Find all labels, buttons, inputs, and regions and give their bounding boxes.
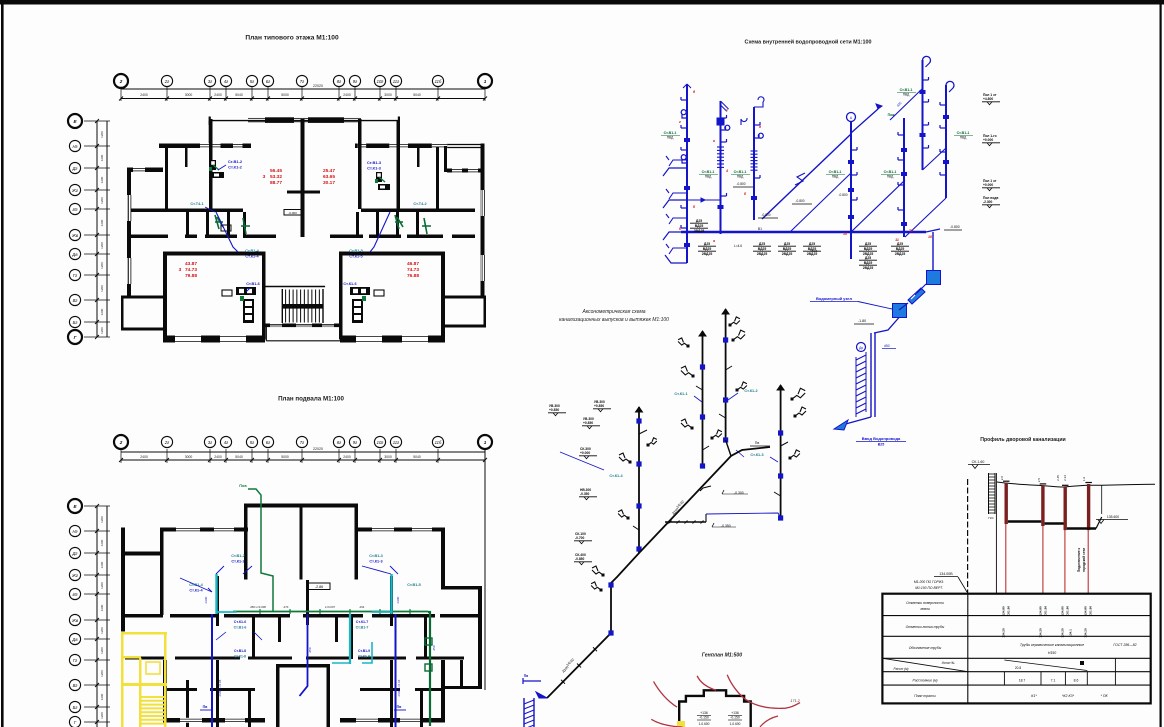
svg-text:-2.300: -2.300 bbox=[983, 200, 993, 204]
svg-text:1200: 1200 bbox=[100, 154, 104, 161]
svg-text:2.0: 2.0 bbox=[1000, 476, 1004, 481]
svg-text:Д25: Д25 bbox=[897, 242, 903, 246]
svg-text:+0.000: +0.000 bbox=[983, 183, 993, 187]
svg-text:53.32: 53.32 bbox=[270, 174, 282, 180]
svg-text:3000: 3000 bbox=[384, 455, 392, 459]
svg-text:Д25: Д25 bbox=[809, 242, 815, 246]
svg-text:Ст.К1-5: Ст.К1-5 bbox=[349, 255, 362, 259]
svg-text:Д25: Д25 bbox=[759, 242, 765, 246]
svg-text:5г: 5г bbox=[250, 79, 254, 84]
svg-text:ПВД: ПВД bbox=[737, 175, 744, 179]
svg-text:1200: 1200 bbox=[100, 242, 104, 249]
svg-text:134.20: 134.20 bbox=[1038, 628, 1042, 638]
svg-text:Ст.К1-4: Ст.К1-4 bbox=[245, 255, 259, 259]
svg-text:18.7: 18.7 bbox=[1019, 679, 1026, 683]
svg-text:-0.150: -0.150 bbox=[699, 716, 709, 720]
svg-text:10г: 10г bbox=[377, 440, 384, 445]
svg-text:Жв: Жв bbox=[71, 233, 79, 238]
svg-text:134.00В: 134.00В bbox=[939, 572, 953, 576]
svg-text:134.80: 134.80 bbox=[1038, 606, 1042, 616]
svg-text:134.20: 134.20 bbox=[1001, 628, 1005, 638]
svg-text:Ст.К1-1: Ст.К1-1 bbox=[674, 392, 687, 396]
svg-text:ПВД: ПВД bbox=[903, 93, 910, 97]
svg-text:-0.350: -0.350 bbox=[580, 492, 590, 496]
svg-text:Ст.К1-3: Ст.К1-3 bbox=[369, 560, 382, 564]
svg-text:Жг: Жг bbox=[71, 573, 78, 578]
svg-text:22020: 22020 bbox=[313, 447, 323, 451]
svg-text:городской сети: городской сети bbox=[1082, 548, 1086, 572]
svg-text:Г: Г bbox=[74, 335, 77, 340]
svg-text:2: 2 bbox=[119, 440, 123, 445]
svg-text:М1:200 ПО ГОРИЗ.: М1:200 ПО ГОРИЗ. bbox=[914, 580, 944, 584]
svg-text:2400: 2400 bbox=[140, 93, 148, 97]
svg-text:-0.300: -0.300 bbox=[734, 491, 744, 495]
svg-text:Ст.В1-3: Ст.В1-3 bbox=[367, 160, 382, 165]
svg-text:d70: d70 bbox=[284, 605, 289, 609]
svg-text:канализационных выпусков и выт: канализационных выпусков и вытяжек М1:10… bbox=[559, 317, 669, 323]
svg-text:Ст.К1-2: Ст.К1-2 bbox=[744, 389, 757, 393]
svg-text:Аксонометрическая схема: Аксонометрическая схема bbox=[581, 309, 645, 315]
svg-text:74.73: 74.73 bbox=[185, 267, 197, 273]
svg-text:25.47: 25.47 bbox=[323, 168, 335, 174]
svg-text:Ст.В1-1: Ст.В1-1 bbox=[957, 131, 970, 135]
svg-text:2400: 2400 bbox=[343, 93, 351, 97]
svg-text:5г: 5г bbox=[250, 440, 254, 445]
svg-text:СК1.90: СК1.90 bbox=[1065, 606, 1069, 616]
svg-text:2400: 2400 bbox=[343, 455, 351, 459]
svg-text:d100 L=6.04: d100 L=6.04 bbox=[397, 679, 401, 696]
svg-text:8г: 8г bbox=[337, 440, 341, 445]
svg-text:Д25: Д25 bbox=[784, 242, 790, 246]
svg-text:Ст.К1-3: Ст.К1-3 bbox=[750, 453, 763, 457]
svg-text:171.2: 171.2 bbox=[790, 699, 800, 703]
svg-text:2.5: 2.5 bbox=[1037, 478, 1041, 483]
svg-text:1200: 1200 bbox=[100, 197, 104, 204]
svg-text:2ВД25: 2ВД25 bbox=[757, 252, 768, 256]
svg-text:Д25: Д25 bbox=[865, 242, 871, 246]
svg-text:4г: 4г bbox=[224, 79, 228, 84]
svg-text:134.20: 134.20 bbox=[1084, 628, 1088, 638]
svg-text:Ст.В1-1: Ст.В1-1 bbox=[664, 131, 677, 135]
svg-text:+136: +136 bbox=[700, 711, 708, 715]
svg-text:2ВД25: 2ВД25 bbox=[694, 229, 705, 233]
svg-text:46.87: 46.87 bbox=[407, 261, 419, 267]
svg-text:3: 3 bbox=[179, 267, 182, 273]
svg-text:Обозначение трубы: Обозначение трубы bbox=[909, 646, 942, 650]
svg-text:1200: 1200 bbox=[100, 131, 104, 138]
svg-text:Жг: Жг bbox=[71, 188, 78, 193]
svg-text:М1:100 ПО ВЕРТ.: М1:100 ПО ВЕРТ. bbox=[915, 586, 943, 590]
svg-text:ПВД: ПВД bbox=[705, 175, 712, 179]
svg-text:22020: 22020 bbox=[313, 84, 323, 88]
svg-text:Дг: Дг bbox=[71, 551, 77, 556]
svg-text:11г: 11г bbox=[393, 440, 399, 445]
svg-text:1: 1 bbox=[484, 79, 487, 84]
svg-text:134.1: 134.1 bbox=[1069, 629, 1073, 637]
svg-text:+136: +136 bbox=[731, 711, 739, 715]
svg-text:5040: 5040 bbox=[413, 455, 421, 459]
svg-text:ВД25: ВД25 bbox=[896, 247, 905, 251]
svg-text:ВД25: ВД25 bbox=[695, 224, 704, 228]
svg-text:20.8: 20.8 bbox=[1015, 666, 1021, 670]
svg-text:Т2: Т2 bbox=[909, 229, 913, 233]
svg-text:Ст.В1-4: Ст.В1-4 bbox=[245, 249, 259, 253]
svg-text:Профиль дворовой канализации: Профиль дворовой канализации bbox=[980, 436, 1066, 443]
svg-text:План трассы: План трассы bbox=[914, 694, 936, 698]
svg-text:Вг: Вг bbox=[73, 683, 78, 688]
svg-text:1-0.600: 1-0.600 bbox=[699, 722, 710, 726]
svg-text:ВД25: ВД25 bbox=[864, 261, 873, 265]
svg-text:-0.800: -0.800 bbox=[761, 213, 770, 217]
svg-text:2ВД25: 2ВД25 bbox=[782, 252, 793, 256]
svg-text:5040: 5040 bbox=[413, 93, 421, 97]
svg-text:Ст.К1-6: Ст.К1-6 bbox=[343, 282, 356, 286]
svg-text:76.88: 76.88 bbox=[407, 273, 419, 279]
svg-text:Ст.В1-6: Ст.В1-6 bbox=[246, 282, 260, 286]
svg-text:Жв: Жв bbox=[71, 618, 79, 623]
svg-text:d50: d50 bbox=[884, 344, 890, 348]
svg-text:План подвала М1:100: План подвала М1:100 bbox=[278, 396, 344, 403]
svg-text:1200: 1200 bbox=[100, 539, 104, 546]
svg-text:Ст.В1-1: Ст.В1-1 bbox=[702, 170, 715, 174]
svg-text:Дв: Дв bbox=[71, 637, 78, 642]
svg-text:Вг: Вг bbox=[73, 298, 78, 303]
svg-text:*К2 К3*: *К2 К3* bbox=[1062, 694, 1075, 698]
svg-text:Расст (м): Расст (м) bbox=[894, 667, 909, 671]
svg-text:-0.700: -0.700 bbox=[575, 536, 585, 540]
svg-text:8г: 8г bbox=[337, 79, 341, 84]
svg-text:ПВД: ПВД bbox=[887, 175, 894, 179]
svg-text:-1.80: -1.80 bbox=[858, 319, 866, 323]
svg-text:63.65: 63.65 bbox=[323, 174, 335, 180]
svg-text:3000: 3000 bbox=[185, 455, 193, 459]
svg-text:Ст.Т4-1: Ст.Т4-1 bbox=[190, 202, 203, 206]
svg-text:Подключение к: Подключение к bbox=[1077, 547, 1081, 572]
svg-text:ПВД: ПВД bbox=[960, 136, 967, 140]
svg-text:Ст.В1-3: Ст.В1-3 bbox=[369, 554, 383, 558]
svg-text:ПВД: ПВД bbox=[667, 136, 674, 140]
svg-text:5000: 5000 bbox=[281, 93, 289, 97]
svg-text:30.17: 30.17 bbox=[323, 180, 335, 186]
svg-text:2г: 2г bbox=[164, 440, 169, 445]
svg-text:9г: 9г bbox=[353, 440, 357, 445]
svg-text:Расстояние (м): Расстояние (м) bbox=[912, 679, 937, 683]
svg-text:В1: В1 bbox=[758, 227, 762, 231]
svg-text:СК1.90: СК1.90 bbox=[1043, 606, 1047, 616]
svg-text:СК1.90: СК1.90 bbox=[1089, 606, 1093, 616]
svg-text:d50 L=0.008: d50 L=0.008 bbox=[250, 605, 266, 609]
svg-text:5000: 5000 bbox=[281, 455, 289, 459]
svg-text:1200: 1200 bbox=[100, 582, 104, 589]
svg-text:134.80: 134.80 bbox=[1084, 606, 1088, 616]
svg-text:Ст.В1-1: Ст.В1-1 bbox=[900, 88, 913, 92]
svg-text:Ст.К1-4: Ст.К1-4 bbox=[189, 589, 203, 593]
svg-text:3г: 3г bbox=[208, 79, 212, 84]
svg-text:Гг: Гг bbox=[73, 658, 77, 663]
svg-text:3: 3 bbox=[263, 174, 266, 180]
svg-text:Ст.В1-1: Ст.В1-1 bbox=[884, 170, 897, 174]
svg-text:9г: 9г bbox=[353, 79, 357, 84]
svg-text:7.1: 7.1 bbox=[1051, 679, 1056, 683]
svg-text:Ст.В1-2: Ст.В1-2 bbox=[231, 554, 245, 558]
svg-text:1200: 1200 bbox=[100, 219, 104, 226]
svg-text:1200: 1200 bbox=[100, 604, 104, 611]
svg-text:Дв: Дв bbox=[859, 346, 863, 350]
svg-text:134.80: 134.80 bbox=[1001, 606, 1005, 616]
svg-text:1200: 1200 bbox=[100, 176, 104, 183]
svg-text:1200: 1200 bbox=[100, 647, 104, 654]
svg-text:+0.850: +0.850 bbox=[549, 408, 559, 412]
svg-text:-0.000: -0.000 bbox=[288, 211, 297, 215]
svg-text:2ВД25: 2ВД25 bbox=[702, 252, 713, 256]
svg-text:Ст.В1-5: Ст.В1-5 bbox=[407, 583, 421, 587]
svg-text:Ст.К1-2: Ст.К1-2 bbox=[231, 560, 244, 564]
svg-text:-0.800: -0.800 bbox=[950, 225, 960, 229]
svg-text:1200: 1200 bbox=[100, 670, 104, 677]
svg-text:7г: 7г bbox=[300, 440, 304, 445]
svg-text:+0.850: +0.850 bbox=[583, 421, 593, 425]
svg-text:Ст.В1-2: Ст.В1-2 bbox=[228, 159, 243, 164]
svg-text:-0.800: -0.800 bbox=[838, 193, 847, 197]
svg-text:Ст.К1-7: Ст.К1-7 bbox=[356, 620, 368, 624]
svg-text:88.77: 88.77 bbox=[270, 180, 282, 186]
svg-text:134.20: 134.20 bbox=[1060, 628, 1064, 638]
svg-text:10: 10 bbox=[928, 235, 932, 239]
svg-text:2.34: 2.34 bbox=[1063, 475, 1067, 481]
svg-text:1200: 1200 bbox=[100, 693, 104, 700]
svg-text:Уклон ‰: Уклон ‰ bbox=[942, 661, 956, 665]
svg-text:7г: 7г bbox=[300, 79, 304, 84]
svg-text:Пож: Пож bbox=[811, 249, 818, 253]
svg-text:1200: 1200 bbox=[100, 262, 104, 269]
svg-text:Пов: Пов bbox=[239, 484, 247, 488]
svg-text:5040: 5040 bbox=[235, 455, 243, 459]
svg-text:2400: 2400 bbox=[214, 455, 222, 459]
svg-text:-2.86: -2.86 bbox=[315, 585, 323, 589]
svg-text:135.600: 135.600 bbox=[1107, 515, 1119, 519]
svg-text:Ст.В1-1: Ст.В1-1 bbox=[829, 170, 842, 174]
svg-text:Трубы керамические канализацио: Трубы керамические канализационные bbox=[1020, 643, 1084, 647]
svg-text:134.80: 134.80 bbox=[1060, 606, 1064, 616]
svg-text:Бг: Бг bbox=[73, 705, 78, 710]
svg-text:2: 2 bbox=[119, 79, 123, 84]
svg-text:2.45: 2.45 bbox=[1056, 475, 1060, 481]
svg-text:Гг: Гг bbox=[73, 273, 77, 278]
svg-text:56.45: 56.45 bbox=[270, 168, 282, 174]
svg-text:ГКС: ГКС bbox=[988, 516, 994, 520]
svg-text:+4.800: +4.800 bbox=[983, 97, 993, 101]
svg-text:d64: d64 bbox=[360, 605, 365, 609]
svg-text:Нг: Нг bbox=[72, 529, 77, 534]
svg-text:+0.850: +0.850 bbox=[594, 404, 604, 408]
svg-text:79.88: 79.88 bbox=[185, 273, 197, 279]
svg-text:* ПК: * ПК bbox=[1100, 694, 1108, 698]
svg-text:Водомерный узел: Водомерный узел bbox=[816, 296, 853, 301]
svg-text:1200: 1200 bbox=[100, 308, 104, 315]
svg-text:СК.1.60: СК.1.60 bbox=[972, 460, 985, 464]
svg-text:Ст.К1-3: Ст.К1-3 bbox=[367, 166, 382, 171]
svg-text:Пв: Пв bbox=[397, 705, 403, 709]
svg-text:Ст.В1-6: Ст.В1-6 bbox=[234, 626, 247, 630]
svg-text:Д25: Д25 bbox=[704, 242, 710, 246]
svg-text:Ст.Т4-2: Ст.Т4-2 bbox=[413, 202, 426, 206]
svg-text:d100: d100 bbox=[396, 596, 400, 603]
svg-text:ВД25: ВД25 bbox=[703, 247, 712, 251]
svg-text:ГОСТ 286—82: ГОСТ 286—82 bbox=[1113, 643, 1136, 647]
svg-text:а: а bbox=[713, 239, 715, 243]
svg-text:+0.000: +0.000 bbox=[983, 138, 993, 142]
svg-text:2400: 2400 bbox=[140, 455, 148, 459]
svg-text:2ВД25: 2ВД25 bbox=[895, 252, 906, 256]
svg-text:Бг: Бг bbox=[73, 320, 78, 325]
svg-text:2г: 2г bbox=[164, 79, 169, 84]
svg-text:3г: 3г bbox=[208, 440, 212, 445]
svg-text:10: 10 bbox=[843, 232, 847, 236]
svg-text:10г: 10г bbox=[377, 79, 384, 84]
svg-text:Ст.В1-1: Ст.В1-1 bbox=[734, 170, 747, 174]
svg-text:Пв: Пв bbox=[755, 441, 760, 445]
svg-text:74.73: 74.73 bbox=[407, 267, 419, 273]
svg-text:СК1.90: СК1.90 bbox=[1006, 606, 1010, 616]
svg-text:1200: 1200 bbox=[100, 561, 104, 568]
svg-text:Ст.К1-9: Ст.К1-9 bbox=[358, 655, 370, 659]
svg-text:4: 4 bbox=[725, 169, 728, 173]
svg-text:6г: 6г bbox=[266, 440, 270, 445]
svg-text:Д25: Д25 bbox=[696, 219, 702, 223]
svg-text:Ст.К1-2: Ст.К1-2 bbox=[228, 165, 243, 170]
svg-text:-0.800: -0.800 bbox=[736, 182, 745, 186]
svg-text:Ст.К1-8: Ст.К1-8 bbox=[234, 655, 246, 659]
svg-text:L=0.007: L=0.007 bbox=[325, 605, 336, 609]
svg-text:Пв: Пв bbox=[203, 705, 209, 709]
svg-text:2400: 2400 bbox=[214, 93, 222, 97]
svg-text:В25: В25 bbox=[878, 443, 885, 447]
svg-text:4г: 4г bbox=[224, 440, 228, 445]
svg-text:1200: 1200 bbox=[100, 327, 104, 334]
svg-text:Н150: Н150 bbox=[1048, 651, 1056, 655]
svg-text:-0.150: -0.150 bbox=[730, 716, 740, 720]
svg-text:земли: земли bbox=[919, 607, 930, 611]
svg-text:Ст.В1-8: Ст.В1-8 bbox=[234, 649, 246, 653]
svg-text:43.87: 43.87 bbox=[185, 261, 197, 267]
svg-text:L=4.6: L=4.6 bbox=[734, 244, 742, 248]
svg-text:Д25: Д25 bbox=[865, 256, 871, 260]
svg-text:Дг: Дг bbox=[71, 166, 77, 171]
svg-text:3000: 3000 bbox=[185, 93, 193, 97]
svg-text:План типового этажа М1:100: План типового этажа М1:100 bbox=[245, 35, 339, 42]
svg-text:d100: d100 bbox=[204, 596, 208, 603]
svg-text:1.9: 1.9 bbox=[1082, 477, 1086, 482]
svg-text:ВД25: ВД25 bbox=[758, 247, 767, 251]
svg-text:11б: 11б bbox=[435, 440, 442, 445]
svg-text:11г: 11г bbox=[393, 79, 399, 84]
svg-text:Отметки лотка трубы: Отметки лотка трубы bbox=[906, 625, 945, 629]
svg-text:1: 1 bbox=[484, 440, 487, 445]
svg-text:1200: 1200 bbox=[100, 285, 104, 292]
svg-text:5040: 5040 bbox=[235, 93, 243, 97]
svg-text:Ст.В1-5: Ст.В1-5 bbox=[349, 249, 363, 253]
svg-text:Ст.К1-6: Ст.К1-6 bbox=[234, 620, 246, 624]
svg-text:-0.850: -0.850 bbox=[575, 557, 585, 561]
svg-text:6г: 6г bbox=[266, 79, 270, 84]
svg-text:d50: d50 bbox=[432, 645, 436, 650]
svg-text:Схема внутренней водопроводной: Схема внутренней водопроводной сети М1:1… bbox=[745, 39, 872, 46]
svg-text:+0.000: +0.000 bbox=[580, 451, 590, 455]
svg-text:1200: 1200 bbox=[100, 712, 104, 719]
svg-text:Ст.В1-7: Ст.В1-7 bbox=[356, 626, 369, 630]
svg-text:Иг: Иг bbox=[72, 592, 77, 597]
svg-text:3000: 3000 bbox=[384, 93, 392, 97]
svg-text:Нг: Нг bbox=[72, 144, 77, 149]
svg-text:ПВД: ПВД bbox=[832, 175, 839, 179]
svg-text:Пв: Пв bbox=[524, 674, 529, 678]
svg-text:-0.800: -0.800 bbox=[795, 199, 804, 203]
svg-text:8.6: 8.6 bbox=[1074, 679, 1079, 683]
svg-text:-0.350: -0.350 bbox=[721, 524, 731, 528]
svg-text:ВД25: ВД25 bbox=[783, 247, 792, 251]
svg-text:11б: 11б bbox=[435, 79, 442, 84]
svg-text:d100 L=6.04: d100 L=6.04 bbox=[218, 679, 222, 696]
svg-text:1200: 1200 bbox=[100, 627, 104, 634]
svg-text:Дв: Дв bbox=[71, 252, 78, 257]
svg-text:1-0.600: 1-0.600 bbox=[730, 722, 741, 726]
svg-text:1200: 1200 bbox=[100, 516, 104, 523]
svg-text:К1*: К1* bbox=[1031, 694, 1037, 698]
svg-text:Ст.К1-4: Ст.К1-4 bbox=[609, 474, 623, 478]
svg-text:Генплан М1:500: Генплан М1:500 bbox=[702, 653, 743, 659]
svg-text:Ввод Водопровода: Ввод Водопровода bbox=[862, 436, 901, 441]
svg-text:ВД25: ВД25 bbox=[864, 247, 873, 251]
svg-text:d50: d50 bbox=[308, 647, 312, 652]
svg-text:Отметки поверхности: Отметки поверхности bbox=[906, 601, 944, 605]
svg-text:Ст.В1-9: Ст.В1-9 bbox=[358, 649, 370, 653]
svg-text:Иг: Иг bbox=[72, 207, 77, 212]
svg-text:2ВД25: 2ВД25 bbox=[863, 266, 874, 270]
svg-text:г: г bbox=[679, 120, 681, 124]
